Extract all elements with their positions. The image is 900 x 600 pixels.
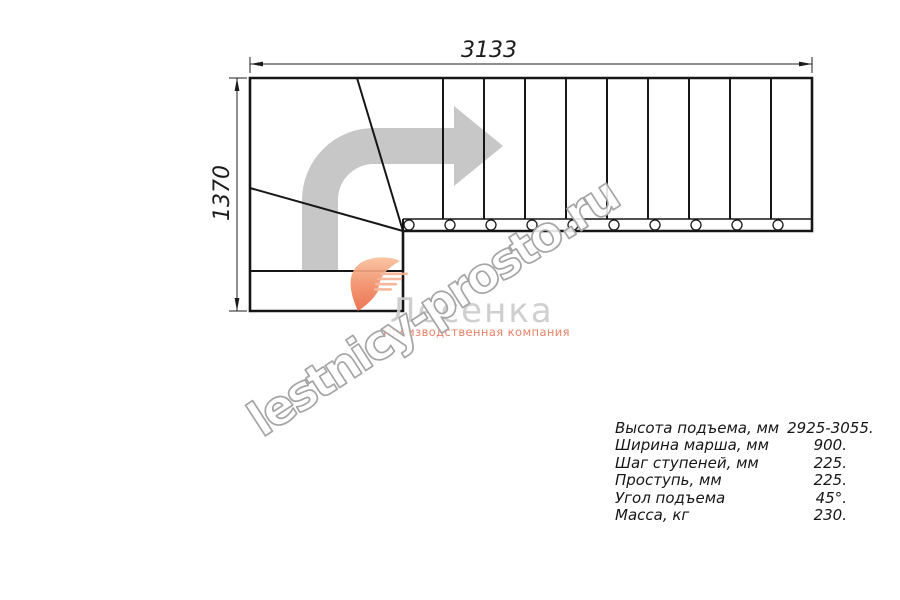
baluster-circle — [691, 220, 701, 230]
spec-value: 900. — [814, 437, 847, 454]
dimension-width-label: 3133 — [461, 38, 517, 63]
watermark-text: lestnicy-prosto.ru — [238, 168, 628, 448]
spec-value: 45°. — [816, 490, 847, 507]
spec-row: Угол подъема 45°. — [615, 490, 847, 507]
specs-table: Высота подъема, мм 2925-3055. Ширина мар… — [615, 420, 847, 524]
spec-row: Проступь, мм 225. — [615, 472, 847, 489]
spec-label: Ширина марша, мм — [615, 437, 769, 454]
dim-arrow-left — [250, 62, 263, 67]
baluster-circle — [773, 220, 783, 230]
dimension-height-label: 1370 — [210, 165, 235, 221]
dim-arrow-right — [799, 62, 812, 67]
spec-label: Угол подъема — [615, 490, 725, 507]
dimension-width — [250, 57, 812, 73]
staircase-drawing-page: 3133 1370 Лесенка Производственная компа… — [0, 0, 900, 600]
direction-arrow-icon — [320, 106, 503, 270]
spec-label: Высота подъема, мм — [615, 420, 779, 437]
baluster-circle — [732, 220, 742, 230]
spec-label: Масса, кг — [615, 507, 689, 524]
spec-value: 225. — [814, 472, 847, 489]
spec-value: 225. — [814, 455, 847, 472]
spec-label: Проступь, мм — [615, 472, 722, 489]
spec-value: 2925-3055. — [787, 420, 874, 437]
spec-row: Шаг ступеней, мм 225. — [615, 455, 847, 472]
baluster-circle — [445, 220, 455, 230]
spec-value: 230. — [814, 507, 847, 524]
spec-row: Масса, кг 230. — [615, 507, 847, 524]
baluster-circle — [404, 220, 414, 230]
dim-arrow-bottom — [235, 298, 240, 311]
dim-arrow-top — [235, 78, 240, 91]
spec-row: Ширина марша, мм 900. — [615, 437, 847, 454]
spec-row: Высота подъема, мм 2925-3055. — [615, 420, 847, 437]
baluster-circle — [486, 220, 496, 230]
spec-label: Шаг ступеней, мм — [615, 455, 759, 472]
baluster-circle — [650, 220, 660, 230]
